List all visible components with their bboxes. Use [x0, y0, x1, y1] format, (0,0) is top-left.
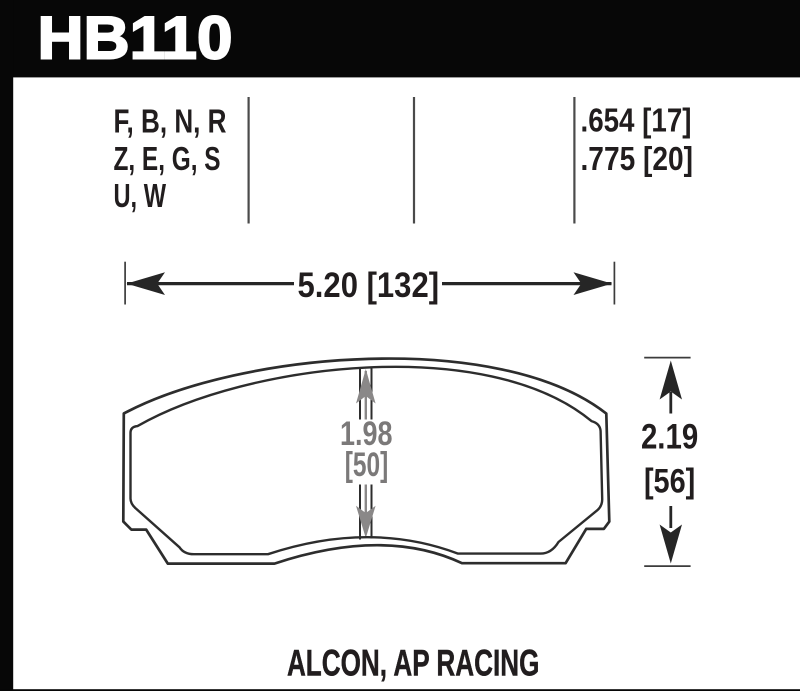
svg-text:.654 [17]: .654 [17]	[581, 101, 692, 138]
svg-text:5.20 [132]: 5.20 [132]	[298, 266, 440, 305]
svg-text:HB110: HB110	[38, 4, 233, 71]
svg-text:U, W: U, W	[114, 177, 167, 214]
svg-text:[50]: [50]	[345, 446, 389, 484]
svg-text:ALCON, AP RACING: ALCON, AP RACING	[287, 642, 540, 683]
svg-text:2.19: 2.19	[641, 417, 698, 456]
svg-text:F, B, N, R: F, B, N, R	[114, 102, 227, 139]
svg-text:.775 [20]: .775 [20]	[581, 140, 694, 177]
svg-text:[56]: [56]	[644, 463, 695, 501]
svg-text:Z, E, G, S: Z, E, G, S	[114, 140, 221, 177]
